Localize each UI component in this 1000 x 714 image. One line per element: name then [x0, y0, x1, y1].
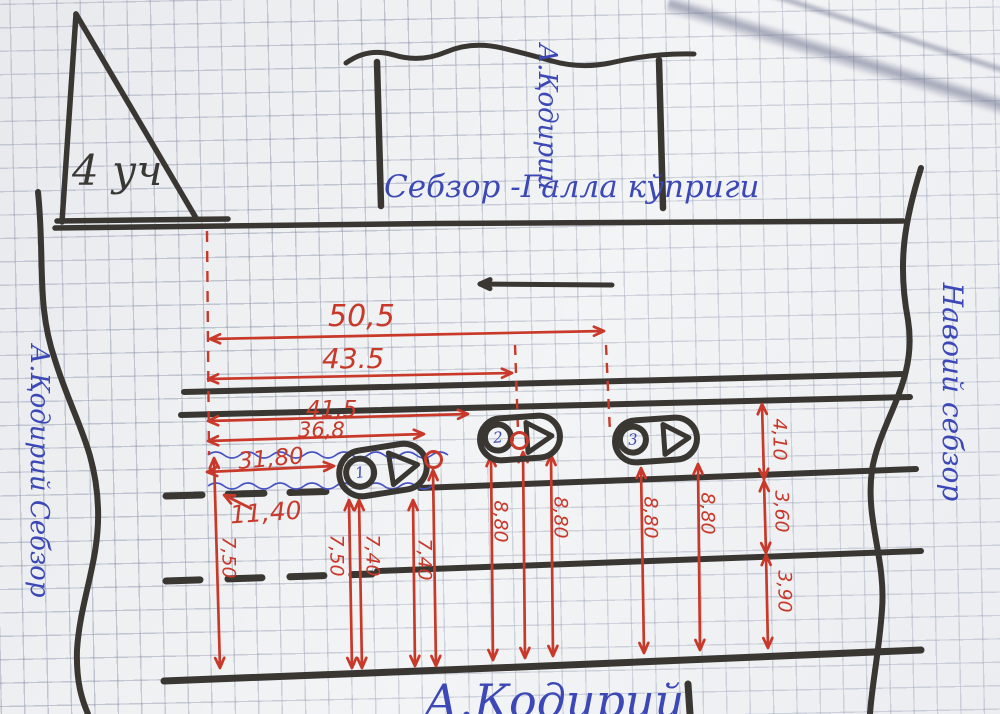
dim-label-43-5: 43.5 [322, 345, 384, 373]
road-line-3-solid [420, 469, 916, 488]
vehicle-3-number: 3 [628, 430, 639, 449]
dim-label-v-8-80-d: 8,80 [698, 484, 717, 544]
bridge-waterline [346, 45, 694, 65]
triangle-label: 4 уч [72, 150, 163, 192]
dim-arrow-v-3-90 [766, 555, 768, 648]
dim-label-v-7-40-a: 7,40 [363, 526, 382, 586]
direction-arrow [480, 284, 612, 285]
road-line-4-solid [377, 551, 921, 571]
dim-label-36-8: 36,8 [298, 420, 345, 441]
bridge-post-left [377, 62, 381, 206]
dim-label-v-4-10: 4,10 [770, 410, 789, 470]
cross-street-label: А.Қодирий [534, 32, 560, 202]
dim-arrow-50-5 [210, 331, 604, 339]
dim-label-v-8-80-a: 8,80 [491, 492, 510, 552]
bottom-street-label: А.Қодирий [424, 678, 684, 714]
vehicle-1-nose-icon [385, 444, 425, 489]
dim-label-31-80: 31,80 [237, 445, 305, 474]
lane-line-dashed-1 [166, 491, 342, 496]
dim-label-v-8-80-b: 8,80 [551, 488, 570, 548]
bottom-post [688, 684, 690, 714]
ink-drawing-layer [0, 0, 1000, 714]
river-right [870, 168, 921, 714]
dim-label-v-3-60: 3,60 [772, 482, 791, 542]
dim-label-50-5: 50,5 [328, 302, 395, 332]
vehicle-3: 3 [610, 413, 701, 467]
accident-sketch-page: 1 2 3 4 уч Себзор -Галла кўприги А.Қодир… [0, 0, 1000, 714]
dim-arrow-v-4-10 [762, 404, 764, 479]
dim-label-v-8-80-c: 8,80 [641, 488, 660, 548]
bridge-label: Себзор -Галла кўприги [384, 172, 759, 203]
left-bank-label: А.Қодирий Себзор [26, 286, 52, 656]
right-bank-label: Навоий себзор [938, 177, 966, 607]
dim-label-v-7-50-a: 7,50 [219, 528, 238, 588]
dim-label-v-3-90: 3,90 [775, 562, 794, 622]
vehicle-3-nose-icon [660, 418, 695, 458]
triangle-base [57, 219, 228, 221]
drop-line-vehicle3 [606, 345, 610, 433]
dim-arrow-v-7-50-b [349, 500, 352, 668]
dim-label-11-40: 11,40 [229, 498, 302, 528]
vehicle-1-number: 1 [354, 463, 366, 482]
dim-arrow-v-3-60 [764, 481, 766, 553]
dim-label-v-7-40-b: 7,40 [415, 530, 434, 590]
dim-label-v-7-50-b: 7,50 [327, 526, 346, 586]
vehicle-2-number: 2 [493, 428, 504, 447]
impact-point-1 [424, 450, 443, 469]
impact-point-2 [510, 431, 529, 450]
